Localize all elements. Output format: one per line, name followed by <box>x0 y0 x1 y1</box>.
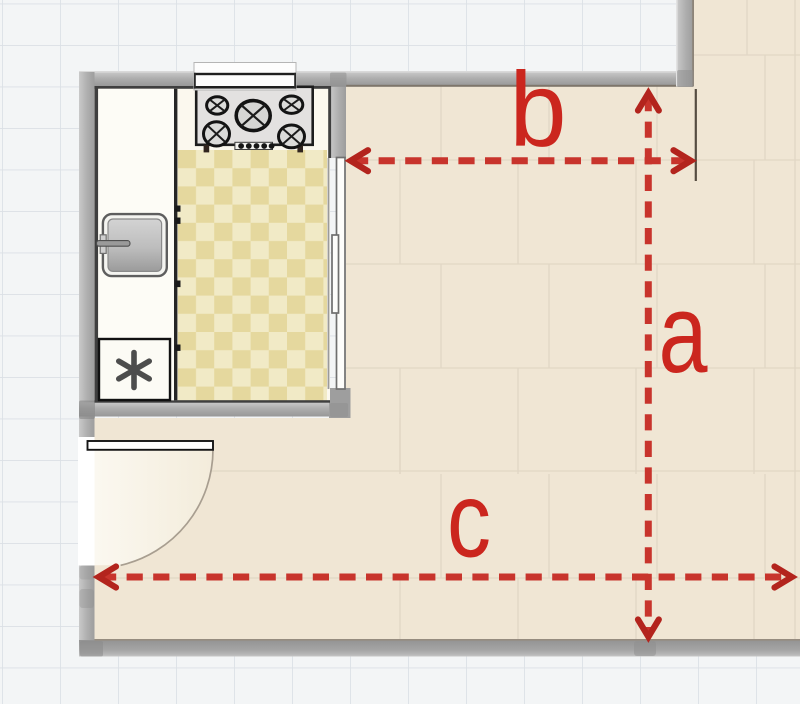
svg-text:b: b <box>510 51 567 169</box>
svg-text:c: c <box>447 460 491 580</box>
svg-text:a: a <box>659 271 709 396</box>
